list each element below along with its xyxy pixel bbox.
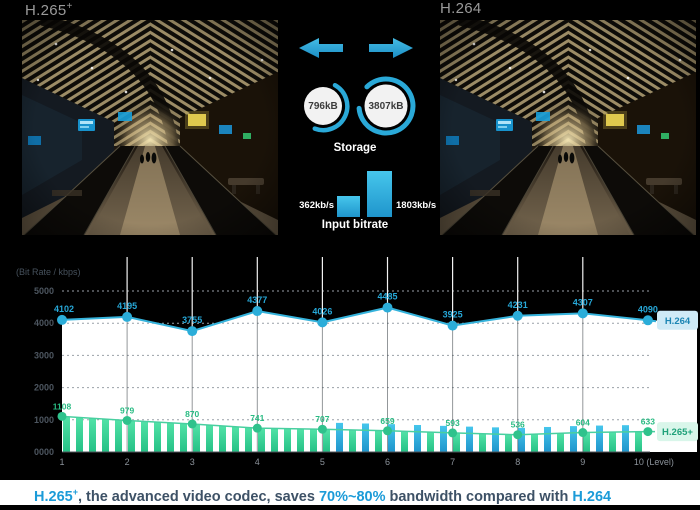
bitrate-bar-right xyxy=(367,171,392,217)
x-tick: 2 xyxy=(125,457,130,467)
h265-value-label: 593 xyxy=(446,418,460,428)
legend-h265-label: H.265+ xyxy=(662,427,693,438)
stripe-bar xyxy=(115,420,122,452)
stripe-bar xyxy=(427,432,434,452)
stripe-bar xyxy=(310,429,317,452)
right-codec-label: H.264 xyxy=(440,0,482,17)
bitrate-chart: 1108979870741707659593536604633410241953… xyxy=(0,255,700,480)
stripe-bar xyxy=(622,425,629,452)
stripe-bar xyxy=(479,434,486,452)
stripe-bar xyxy=(128,421,135,452)
stripe-bar xyxy=(63,417,70,452)
stripe-bar xyxy=(193,424,200,452)
h265-value-label: 1108 xyxy=(53,401,72,411)
h264-marker xyxy=(383,303,393,313)
caption-codec-left: H.265+ xyxy=(34,489,78,505)
stripe-bar xyxy=(76,417,83,452)
h265-value-label: 536 xyxy=(511,420,525,430)
h264-value-label: 4090 xyxy=(638,304,658,314)
caption-bar: H.265+, the advanced video codec, saves … xyxy=(0,480,700,505)
bitrate-bar-left xyxy=(337,196,360,217)
compare-arrows xyxy=(293,35,419,61)
stripe-bar xyxy=(336,423,343,452)
stripe-bar xyxy=(154,422,161,452)
h265-marker xyxy=(58,412,67,421)
x-tick: 1 xyxy=(59,457,64,467)
h265-marker xyxy=(643,427,652,436)
h264-marker xyxy=(317,317,327,327)
stripe-bar xyxy=(89,418,96,452)
y-tick: 2000 xyxy=(34,383,54,393)
h264-value-label: 3925 xyxy=(443,310,463,320)
left-codec-label: H.265+ xyxy=(25,1,73,19)
h264-marker xyxy=(643,315,653,325)
h264-marker xyxy=(578,308,588,318)
stripe-bar xyxy=(362,423,369,452)
stripe-bar xyxy=(531,434,538,452)
h264-marker xyxy=(187,326,197,336)
h265-marker xyxy=(123,416,132,425)
stripe-bar xyxy=(544,427,551,452)
x-tick: 8 xyxy=(515,457,520,467)
h265-marker xyxy=(383,426,392,435)
h264-marker xyxy=(57,315,67,325)
h264-value-label: 4026 xyxy=(312,306,332,316)
stripe-bar xyxy=(466,427,473,452)
bitrate-value-right: 1803kb/s xyxy=(396,200,436,211)
stripe-bar xyxy=(505,434,512,452)
h264-marker xyxy=(252,306,262,316)
legend-h264-label: H.264 xyxy=(665,316,691,327)
h264-marker xyxy=(122,312,132,322)
stripe-bar xyxy=(609,432,616,452)
y-tick: 5000 xyxy=(34,286,54,296)
h264-value-label: 4485 xyxy=(377,292,397,302)
x-tick: 5 xyxy=(320,457,325,467)
stripe-bar xyxy=(557,433,564,452)
h264-marker xyxy=(448,321,458,331)
h265-marker xyxy=(448,428,457,437)
stripe-bar xyxy=(414,425,421,452)
y-tick: 0000 xyxy=(34,447,54,457)
h265-marker xyxy=(253,424,262,433)
h265-value-label: 604 xyxy=(576,418,590,428)
h264-value-label: 4195 xyxy=(117,301,137,311)
storage-title: Storage xyxy=(290,142,420,154)
stripe-bar xyxy=(167,423,174,452)
caption-codec-right: H.264 xyxy=(572,489,611,505)
stripe-bar xyxy=(219,426,226,452)
h265-value-label: 633 xyxy=(641,417,655,427)
stripe-bar xyxy=(245,428,252,452)
h265-marker xyxy=(318,425,327,434)
x-tick: 10 (Level) xyxy=(634,457,674,467)
storage-value-left: 796kB xyxy=(308,101,337,112)
stripe-bar xyxy=(102,419,109,452)
h265-value-label: 870 xyxy=(185,409,199,419)
x-tick: 4 xyxy=(255,457,260,467)
h265-marker xyxy=(188,419,197,428)
h265-value-label: 979 xyxy=(120,405,134,415)
h264-value-label: 4307 xyxy=(573,297,593,307)
stripe-bar xyxy=(440,426,447,452)
h264-value-label: 4231 xyxy=(508,300,528,310)
x-tick: 3 xyxy=(190,457,195,467)
x-tick: 6 xyxy=(385,457,390,467)
storage-comparison: 796kB 3807kB xyxy=(290,75,420,140)
stripe-bar xyxy=(596,426,603,452)
y-tick: 1000 xyxy=(34,415,54,425)
stripe-bar xyxy=(401,431,408,452)
stripe-bar xyxy=(206,425,213,452)
stripe-bar xyxy=(375,431,382,452)
h264-value-label: 4102 xyxy=(54,304,74,314)
stripe-bar xyxy=(141,421,148,452)
y-axis-title: (Bit Rate / kbps) xyxy=(16,267,81,277)
x-tick: 7 xyxy=(450,457,455,467)
stripe-bar xyxy=(635,432,642,452)
stripe-bar xyxy=(349,430,356,452)
walkway-photo-h264 xyxy=(440,20,696,235)
stripe-bar xyxy=(271,428,278,452)
stripe-bar xyxy=(492,427,499,452)
storage-value-right: 3807kB xyxy=(368,101,403,112)
y-tick: 4000 xyxy=(34,318,54,328)
h265-value-label: 707 xyxy=(315,414,329,424)
y-tick: 3000 xyxy=(34,350,54,360)
stripe-bar xyxy=(284,429,291,452)
walkway-photo-h265 xyxy=(22,20,278,235)
bitrate-title: Input bitrate xyxy=(290,219,420,231)
caption-text: H.265+, the advanced video codec, saves … xyxy=(34,489,611,505)
right-arrow-icon xyxy=(369,38,413,58)
bitrate-value-left: 362kb/s xyxy=(299,200,334,211)
stripe-bar xyxy=(570,426,577,452)
x-tick: 9 xyxy=(580,457,585,467)
h264-value-label: 3755 xyxy=(182,315,202,325)
left-arrow-icon xyxy=(299,38,343,58)
h265-marker xyxy=(578,428,587,437)
h265-marker xyxy=(513,430,522,439)
stripe-bar xyxy=(232,427,239,452)
bitrate-comparison: 362kb/s 1803kb/s xyxy=(290,160,450,218)
stripe-bar xyxy=(297,429,304,452)
h264-value-label: 4377 xyxy=(247,295,267,305)
h264-marker xyxy=(513,311,523,321)
stripe-bar xyxy=(180,424,187,452)
caption-highlight: 70%~80% xyxy=(319,489,386,505)
h265-value-label: 659 xyxy=(380,416,394,426)
h265-value-label: 741 xyxy=(250,413,264,423)
